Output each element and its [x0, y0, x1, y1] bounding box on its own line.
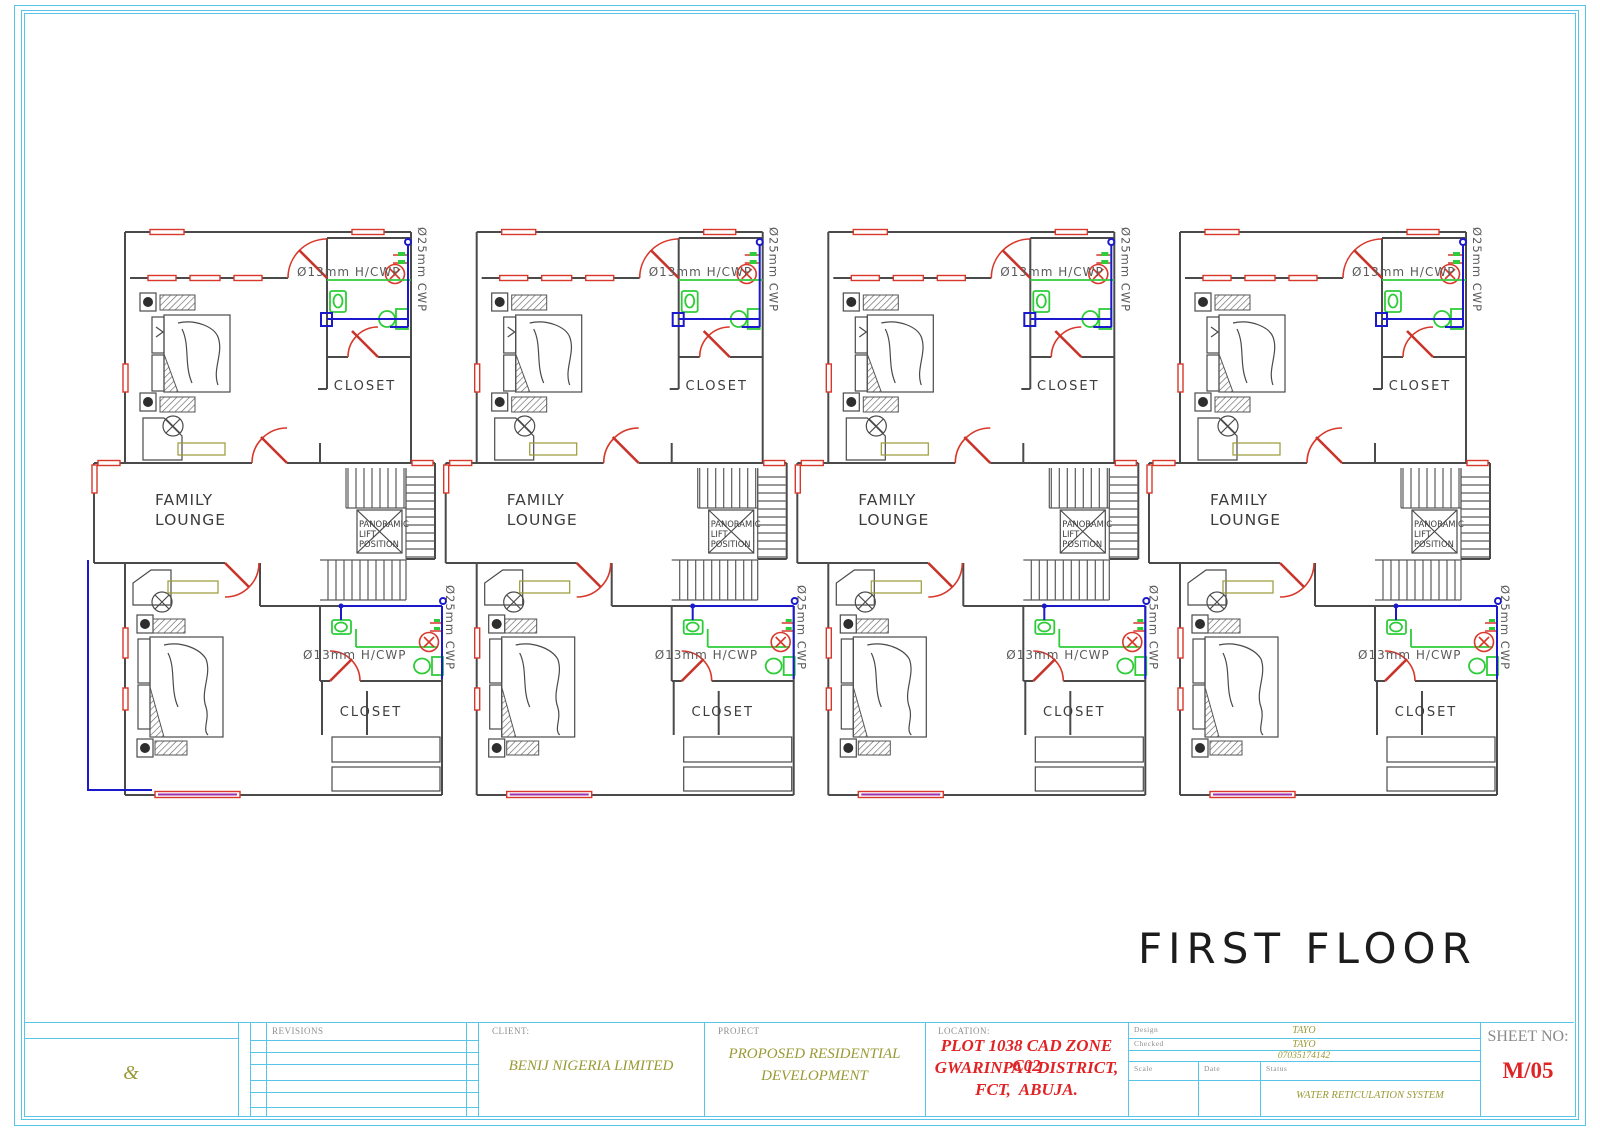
status-value: WATER RETICULATION SYSTEM [1260, 1090, 1480, 1101]
unit-plan-2 [444, 227, 809, 798]
status-label: Status [1266, 1064, 1287, 1073]
floor-plan: CLOSET Ø13mm H/CWP Ø25mm CWP FAMILY LOUN… [0, 0, 1600, 1010]
sheet-no-label: SHEET NO: [1480, 1028, 1576, 1046]
scale-label: Scale [1134, 1064, 1153, 1073]
main-supply-pipe [88, 560, 152, 790]
unit-plan-3 [795, 227, 1160, 798]
location-line2: GWARINPA I DISTRICT, [925, 1058, 1128, 1078]
phone-number: 07035174142 [1128, 1051, 1480, 1061]
location-line3: FCT, ABUJA. [925, 1080, 1128, 1100]
client-label: CLIENT: [492, 1026, 530, 1036]
location-label: LOCATION: [938, 1026, 990, 1036]
company-mark: & [24, 1062, 238, 1085]
project-label: PROJECT [718, 1026, 760, 1036]
date-label: Date [1204, 1064, 1220, 1073]
design-value: TAYO [1128, 1025, 1480, 1036]
unit-plan-4 [1147, 227, 1512, 798]
drawing-sheet: CLOSET Ø13mm H/CWP Ø25mm CWP FAMILY LOUN… [0, 0, 1600, 1131]
client-name: BENIJ NIGERIA LIMITED [478, 1058, 704, 1075]
revisions-label: REVISIONS [272, 1026, 324, 1036]
unit-plan-1 [92, 227, 457, 798]
sheet-no-value: M/05 [1480, 1058, 1576, 1084]
project-name-line2: DEVELOPMENT [704, 1068, 925, 1085]
checked-value: TAYO [1128, 1039, 1480, 1050]
project-name-line1: PROPOSED RESIDENTIAL [704, 1046, 925, 1063]
floor-title: FIRST FLOOR [1138, 924, 1477, 973]
